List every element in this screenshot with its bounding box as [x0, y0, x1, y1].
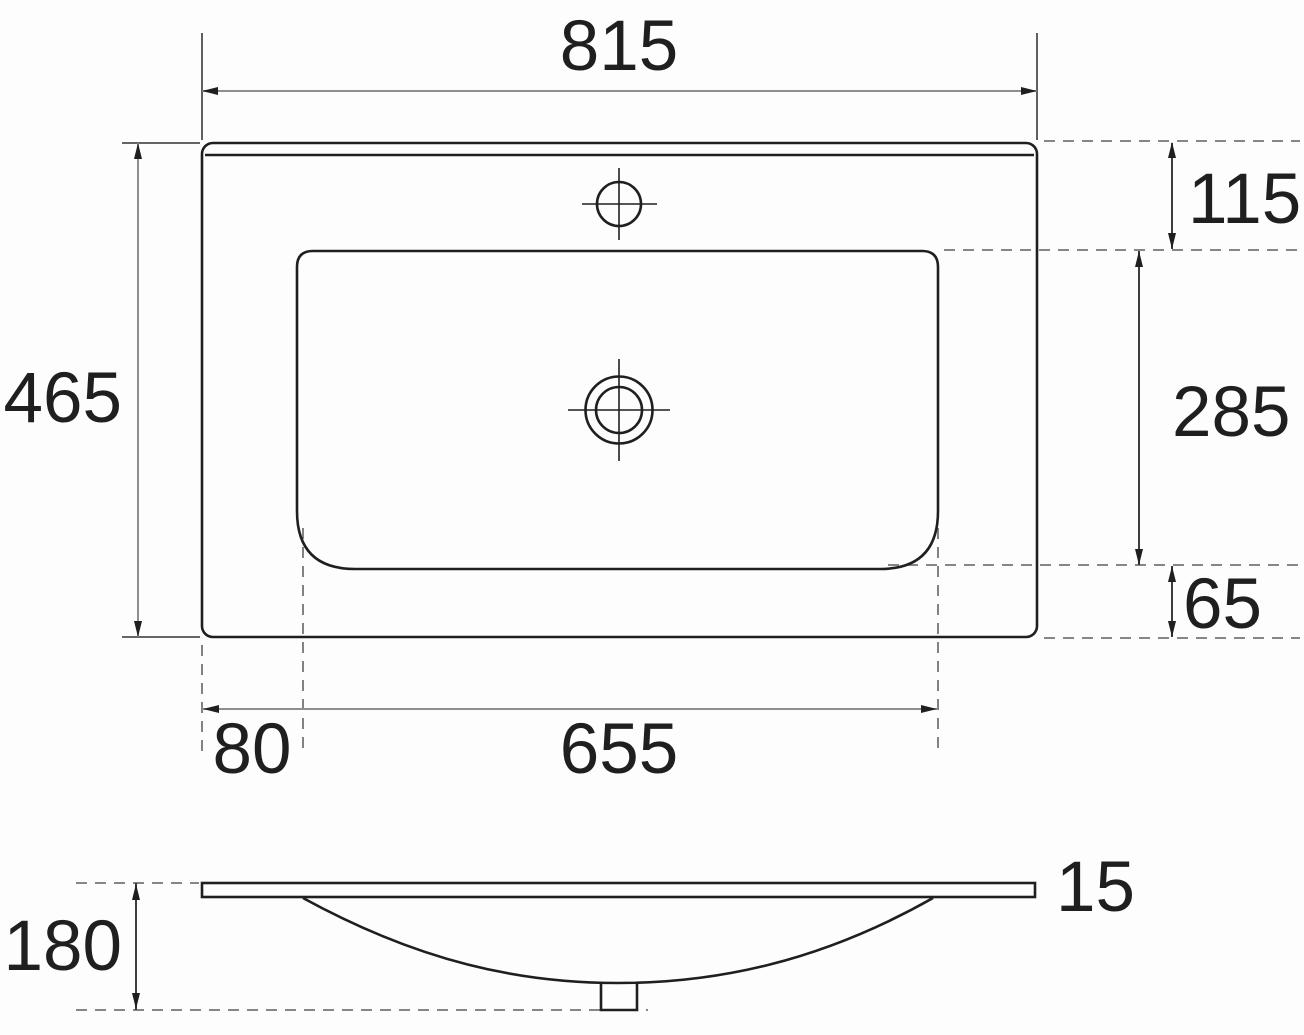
- arrow-285-bottom: [1135, 549, 1143, 565]
- side-rim-slab: [202, 883, 1035, 897]
- side-drain-stub: [601, 983, 637, 1010]
- side-view: [202, 883, 1035, 1010]
- label-basin-width: 655: [560, 710, 678, 789]
- arrow-115-top: [1168, 142, 1176, 158]
- label-basin-depth: 285: [1172, 373, 1290, 452]
- arrow-65-bottom: [1168, 621, 1176, 637]
- extension-lines: [122, 33, 1037, 637]
- arrow-bottomdim-right: [921, 705, 937, 713]
- crosshairs: [568, 168, 670, 461]
- arrow-815-right: [1021, 87, 1037, 95]
- label-overall-width: 815: [560, 7, 678, 86]
- arrow-465-top: [134, 143, 142, 159]
- arrow-65-top: [1168, 566, 1176, 582]
- dimension-arrowheads: [132, 87, 1176, 1009]
- arrow-465-bottom: [134, 621, 142, 637]
- label-rim-thickness: 15: [1056, 848, 1135, 927]
- arrow-815-left: [202, 87, 218, 95]
- technical-drawing-canvas: 815 465 115 285 65 80 655 180 15: [0, 0, 1304, 1035]
- side-bowl-curve: [303, 898, 933, 983]
- washbasin-dimension-drawing: 815 465 115 285 65 80 655 180 15: [0, 0, 1304, 1035]
- arrow-285-top: [1135, 251, 1143, 267]
- dark-dimension-lines: [136, 143, 1172, 1010]
- arrow-180-top: [132, 884, 140, 900]
- label-left-to-basin: 80: [213, 710, 292, 789]
- label-back-to-basin: 115: [1188, 160, 1301, 239]
- label-overall-height: 180: [4, 907, 122, 986]
- label-overall-depth: 465: [4, 359, 122, 438]
- arrow-180-bottom: [132, 993, 140, 1009]
- arrow-115-bottom: [1168, 233, 1176, 249]
- label-basin-to-front: 65: [1183, 565, 1262, 644]
